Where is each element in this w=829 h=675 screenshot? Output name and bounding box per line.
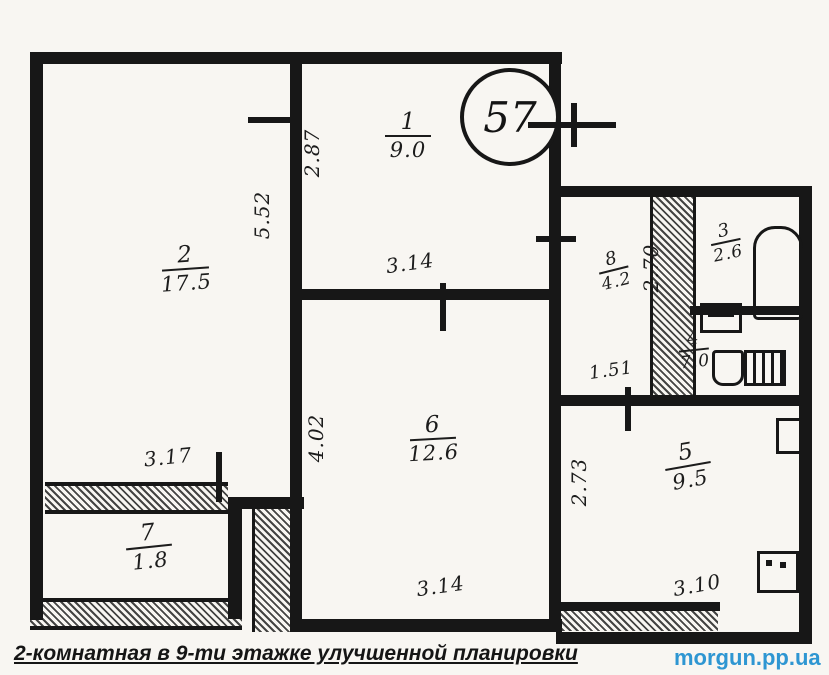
room-number: 1 <box>385 110 432 137</box>
balcony-bottom-wall <box>30 598 242 630</box>
dimension-1-51: 1.51 <box>571 351 650 389</box>
watermark: morgun.pp.ua <box>674 645 821 671</box>
wall-room5-bottom-inner <box>556 602 720 611</box>
dimension-2-73: 2.73 <box>548 452 610 512</box>
dimension-2-70: 2.70 <box>620 238 682 298</box>
wall-left-outer <box>30 52 43 620</box>
bathtub-icon <box>753 226 803 320</box>
dimension-5-52: 5.52 <box>231 185 293 245</box>
room-number: 2 <box>160 241 208 271</box>
apartment-number: 57 <box>483 93 536 142</box>
room-area: 9.5 <box>670 464 710 495</box>
dimension-3-14-upper: 3.14 <box>363 242 456 284</box>
dimension-3-14-lower: 3.14 <box>391 565 489 608</box>
outer-wall-hatched-strip <box>252 505 296 632</box>
room-area: 12.6 <box>408 439 460 467</box>
caption: 2-комнатная в 9-ти этажке улучшенной пла… <box>14 642 578 666</box>
room-label-3: 3 2.6 <box>690 216 761 270</box>
room-label-5: 5 9.5 <box>634 432 742 501</box>
floor-plan-scan: 57 1 9.0 2 17.5 3 2.6 4 7.0 5 9.5 6 12.6… <box>0 0 829 675</box>
room-area: 2.6 <box>711 240 745 267</box>
wall-right-block-top <box>556 186 812 197</box>
dimension-3-17: 3.17 <box>117 437 220 477</box>
room-area: 7.0 <box>679 349 711 373</box>
tick-mark-3 <box>536 236 576 242</box>
loggia-edge-hatch <box>558 611 718 631</box>
room-label-2: 2 17.5 <box>126 239 244 299</box>
stove-icon <box>757 551 799 593</box>
apartment-number-circle: 57 <box>460 68 560 166</box>
wall-bottom-mid <box>290 619 562 632</box>
window-strip-room2-balcony <box>45 482 228 514</box>
cabinet-icon <box>776 418 808 454</box>
dimension-2-87: 2.87 <box>282 123 342 183</box>
tick-mark-6 <box>625 387 631 431</box>
room-label-1: 1 9.0 <box>358 110 458 162</box>
room-label-7: 7 1.8 <box>101 516 198 577</box>
wall-room1-room6-divider <box>296 289 554 300</box>
room-label-6: 6 12.6 <box>382 410 485 467</box>
radiator-icon <box>744 350 786 386</box>
room-area: 17.5 <box>160 268 212 296</box>
room-label-4: 4 7.0 <box>660 327 728 375</box>
wall-bottom-right-outer <box>556 632 812 644</box>
tick-mark-2 <box>571 103 577 147</box>
room-area: 9.0 <box>390 137 426 162</box>
room-number: 6 <box>408 412 456 442</box>
tick-mark-4 <box>440 283 446 331</box>
room-area: 1.8 <box>131 546 170 575</box>
dimension-4-02: 4.02 <box>285 408 347 468</box>
dimension-3-10: 3.10 <box>650 562 744 607</box>
